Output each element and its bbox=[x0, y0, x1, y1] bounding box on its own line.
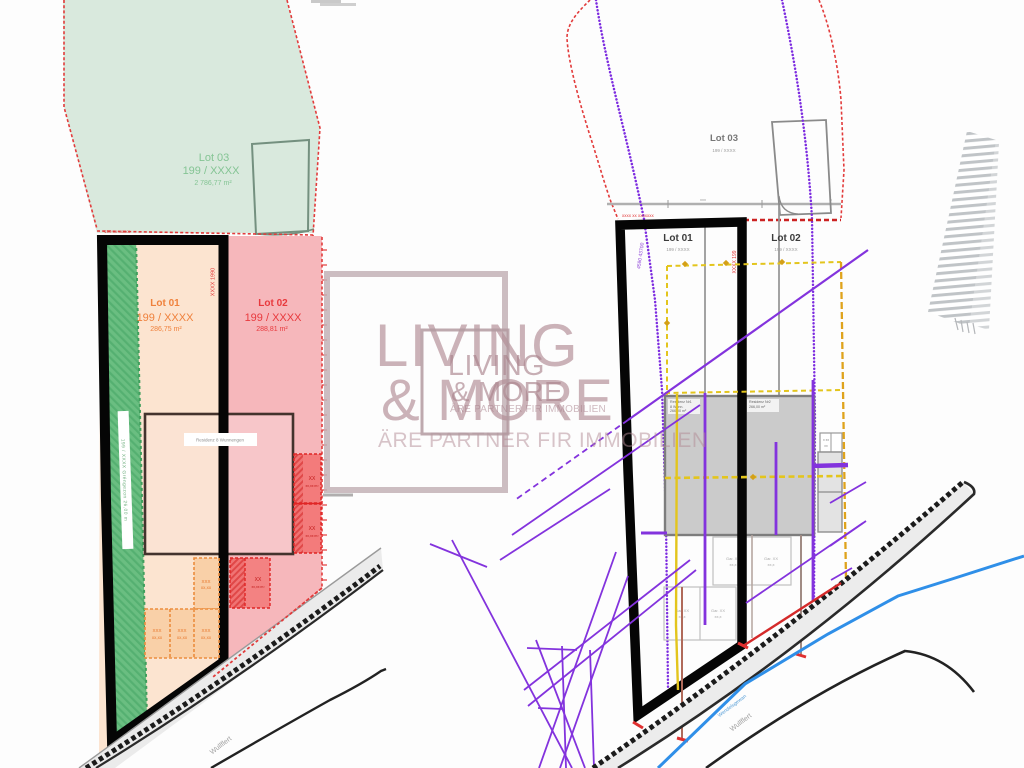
svg-text:199 / XXXX: 199 / XXXX bbox=[137, 312, 195, 324]
svg-text:xx,x: xx,x bbox=[714, 614, 721, 619]
svg-text:Lot 02: Lot 02 bbox=[258, 298, 288, 309]
svg-text:199 / XXXX: 199 / XXXX bbox=[666, 247, 689, 252]
svg-text:4590 43700: 4590 43700 bbox=[636, 242, 646, 269]
svg-text:xxx: xxx bbox=[700, 197, 706, 202]
svg-text:xx,x: xx,x bbox=[767, 562, 774, 567]
svg-text:288,81 m²: 288,81 m² bbox=[256, 326, 288, 333]
svg-text:XXXX 1990: XXXX 1990 bbox=[211, 268, 217, 296]
svg-text:286,75 m²: 286,75 m² bbox=[150, 326, 182, 333]
svg-text:266,00 m²: 266,00 m² bbox=[670, 409, 687, 413]
svg-text:Residenz Nr1: Residenz Nr1 bbox=[670, 400, 692, 404]
svg-text:199 / XXXX: 199 / XXXX bbox=[183, 165, 241, 177]
svg-text:xx,xx m²: xx,xx m² bbox=[305, 484, 319, 488]
svg-text:Lot 03: Lot 03 bbox=[199, 152, 230, 164]
svg-text:XXX: XXX bbox=[177, 628, 186, 633]
svg-text:xx,xx: xx,xx bbox=[177, 635, 188, 640]
svg-text:199 / XXXX: 199 / XXXX bbox=[712, 148, 735, 153]
svg-text:Gar. XX: Gar. XX bbox=[764, 556, 778, 561]
svg-text:2 786,77 m²: 2 786,77 m² bbox=[194, 180, 232, 187]
svg-text:XX: XX bbox=[309, 526, 316, 532]
svg-text:Gar. XX: Gar. XX bbox=[711, 608, 725, 613]
svg-text:XXX: XXX bbox=[152, 628, 161, 633]
svg-text:xx,xx: xx,xx bbox=[201, 585, 212, 590]
svg-text:xx,xx: xx,xx bbox=[152, 635, 163, 640]
svg-text:199 / XXXX: 199 / XXXX bbox=[245, 312, 303, 324]
svg-text:XX: XX bbox=[255, 577, 262, 583]
svg-text:xx: xx bbox=[824, 444, 828, 448]
svg-text:199 xx xxxxx: 199 xx xxxxx bbox=[104, 229, 131, 234]
svg-text:x xx: x xx bbox=[823, 438, 829, 442]
svg-text:xx,xx m²: xx,xx m² bbox=[251, 585, 265, 589]
svg-text:Lot 01: Lot 01 bbox=[150, 298, 180, 309]
svg-text:Residenz 8 Wunnengen: Residenz 8 Wunnengen bbox=[196, 438, 244, 443]
svg-text:xx,x: xx,x bbox=[729, 562, 736, 567]
svg-text:199 / XXXX: 199 / XXXX bbox=[774, 247, 797, 252]
svg-text:Wullflert: Wullflert bbox=[729, 712, 753, 733]
svg-text:xx,xx: xx,xx bbox=[201, 635, 212, 640]
svg-text:& MORE: & MORE bbox=[451, 376, 563, 407]
svg-text:Lot 03: Lot 03 bbox=[710, 133, 738, 144]
svg-text:XXX: XXX bbox=[201, 579, 210, 584]
svg-text:Lot 01: Lot 01 bbox=[663, 233, 693, 244]
svg-text:XX: XX bbox=[309, 476, 316, 482]
svg-text:xxxx xx xxxxxxx: xxxx xx xxxxxxx bbox=[622, 213, 655, 218]
svg-text:ÄRE PARTNER FIR IMMOBILIEN: ÄRE PARTNER FIR IMMOBILIEN bbox=[378, 429, 708, 452]
svg-text:Wullflert: Wullflert bbox=[209, 735, 233, 756]
svg-text:XXX: XXX bbox=[201, 628, 210, 633]
svg-text:XXXX 199: XXXX 199 bbox=[732, 250, 738, 273]
svg-text:Residenz Nr2: Residenz Nr2 bbox=[749, 400, 771, 404]
svg-text:Lot 02: Lot 02 bbox=[771, 233, 801, 244]
svg-text:xx,xx m²: xx,xx m² bbox=[305, 534, 319, 538]
svg-text:ÄRE PARTNER FIR IMMOBILIEN: ÄRE PARTNER FIR IMMOBILIEN bbox=[450, 403, 606, 415]
svg-text:266,00 m²: 266,00 m² bbox=[749, 405, 766, 409]
